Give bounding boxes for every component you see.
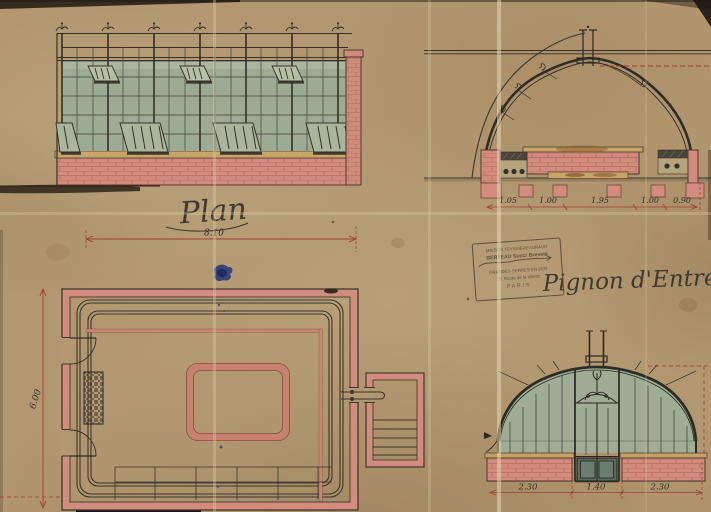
- cresting-ornament: [56, 22, 68, 31]
- base-cap: [620, 453, 707, 458]
- plan-height-dimension: 6.00: [28, 388, 44, 410]
- bottom-vent-open: [120, 123, 168, 152]
- footing: [481, 183, 501, 198]
- scan-edge-left: [0, 230, 3, 512]
- footing: [519, 185, 533, 197]
- door-opening: [60, 338, 72, 365]
- plan-title: Plan: [178, 192, 248, 232]
- pilaster-capital: [344, 50, 363, 57]
- ink-smudge: [324, 289, 338, 294]
- valve: [350, 397, 354, 401]
- heating-pipe: [674, 163, 679, 168]
- heating-pipe: [503, 169, 508, 174]
- section-dimension-2: 1.95: [591, 196, 609, 205]
- footing: [607, 185, 621, 197]
- fox-stain: [46, 244, 70, 260]
- cresting-ornament: [102, 22, 114, 31]
- plan-walls: [62, 289, 358, 510]
- bottom-vent-open: [213, 123, 261, 152]
- pilaster-coursing: [346, 56, 361, 185]
- central-bed-outline: [187, 364, 290, 441]
- speck: [332, 221, 334, 223]
- boiler-radiator: [84, 372, 103, 424]
- stairs: [373, 420, 417, 455]
- ink-blot-core: [217, 269, 227, 277]
- left-lintel: [500, 152, 527, 160]
- cresting-ornament: [148, 22, 160, 31]
- lantern-finial: [587, 26, 589, 28]
- drawing-sheet: 1.05 1.00 1.95 1.00 0.90 Plan 8.10: [0, 0, 711, 512]
- section-dimension-1: 1.00: [539, 196, 557, 205]
- ridge-lantern-posts: [590, 331, 604, 371]
- door-opening: [60, 430, 72, 457]
- base-cap: [485, 453, 574, 458]
- right-post: [688, 150, 698, 183]
- scan-edge-top-left: [0, 0, 240, 9]
- glass-footprint-line: [86, 329, 322, 332]
- heating-pipe: [664, 163, 669, 168]
- ink-speck: [220, 446, 223, 449]
- cresting-ornament: [332, 22, 344, 31]
- arch-end-flag: [484, 432, 492, 439]
- pier-coursing: [481, 150, 500, 183]
- plan-view: Plan 8.10: [0, 192, 424, 510]
- brick-coursing: [622, 458, 705, 481]
- stamp-line-3: 20, Route de la Villette: [496, 273, 541, 281]
- glass-footprint-line: [319, 329, 322, 501]
- section-dimension-4: 0.90: [673, 196, 691, 205]
- central-bed: [190, 367, 286, 437]
- gable-dimension-1: 1.40: [587, 483, 607, 493]
- bed-coursing: [527, 151, 639, 174]
- ink-speck: [217, 486, 219, 488]
- side-elevation-view: [0, 22, 363, 193]
- heating-pipe-loop: [91, 314, 329, 483]
- stamp-line-4: PARIS: [507, 282, 532, 290]
- door-panel: [599, 461, 614, 478]
- plan-width-dimension: 8.10: [204, 229, 224, 239]
- datum-lines: [424, 51, 711, 54]
- right-lintel: [658, 150, 688, 158]
- cross-section-view: 1.05 1.00 1.95 1.00 0.90: [424, 26, 711, 214]
- brick-coursing: [57, 158, 358, 185]
- ink-speck: [223, 310, 225, 312]
- gable-title: Pignon d'Entrée.: [541, 264, 711, 297]
- gable-dimension-2: 2.30: [650, 483, 671, 493]
- rust-stain: [556, 146, 608, 153]
- ink-speck: [218, 304, 220, 306]
- stay-scroll: [640, 81, 646, 87]
- plank-stain: [593, 173, 617, 177]
- cresting-ornament: [194, 22, 206, 31]
- stay-scroll: [539, 64, 545, 70]
- fox-stain: [391, 238, 405, 248]
- scan-edge-top-right: [693, 0, 711, 27]
- cresting-ornament: [286, 22, 298, 31]
- valve: [350, 390, 354, 394]
- soil-shade: [424, 179, 711, 182]
- door-panel: [581, 461, 596, 478]
- top-rails: [57, 34, 360, 61]
- arch-end-tail: [486, 441, 497, 452]
- wall-outer-line: [62, 289, 358, 510]
- central-bed-outline: [194, 371, 283, 434]
- heating-pipe-loop: [88, 311, 332, 486]
- cresting-ornament: [240, 22, 252, 31]
- speck: [467, 298, 470, 301]
- heating-pipe: [519, 169, 524, 174]
- wall-inner-line: [70, 297, 350, 502]
- heating-pipe: [511, 169, 516, 174]
- section-dimension-3: 1.00: [641, 196, 659, 205]
- pipe-opening: [364, 388, 375, 403]
- right-pipe-chase: [658, 158, 688, 174]
- ridge-lantern: [579, 30, 597, 66]
- architectural-drawing: 1.05 1.00 1.95 1.00 0.90 Plan 8.10: [0, 0, 711, 512]
- plank-stain: [565, 173, 585, 177]
- pipe-manifold: [341, 392, 385, 399]
- fox-stain: [679, 298, 697, 312]
- brick-coursing: [487, 458, 572, 481]
- section-dimension-0: 1.05: [499, 196, 517, 205]
- entrance-gable-view: Pignon d'Entrée.: [484, 264, 711, 501]
- gable-dimension-0: 2.30: [518, 483, 539, 493]
